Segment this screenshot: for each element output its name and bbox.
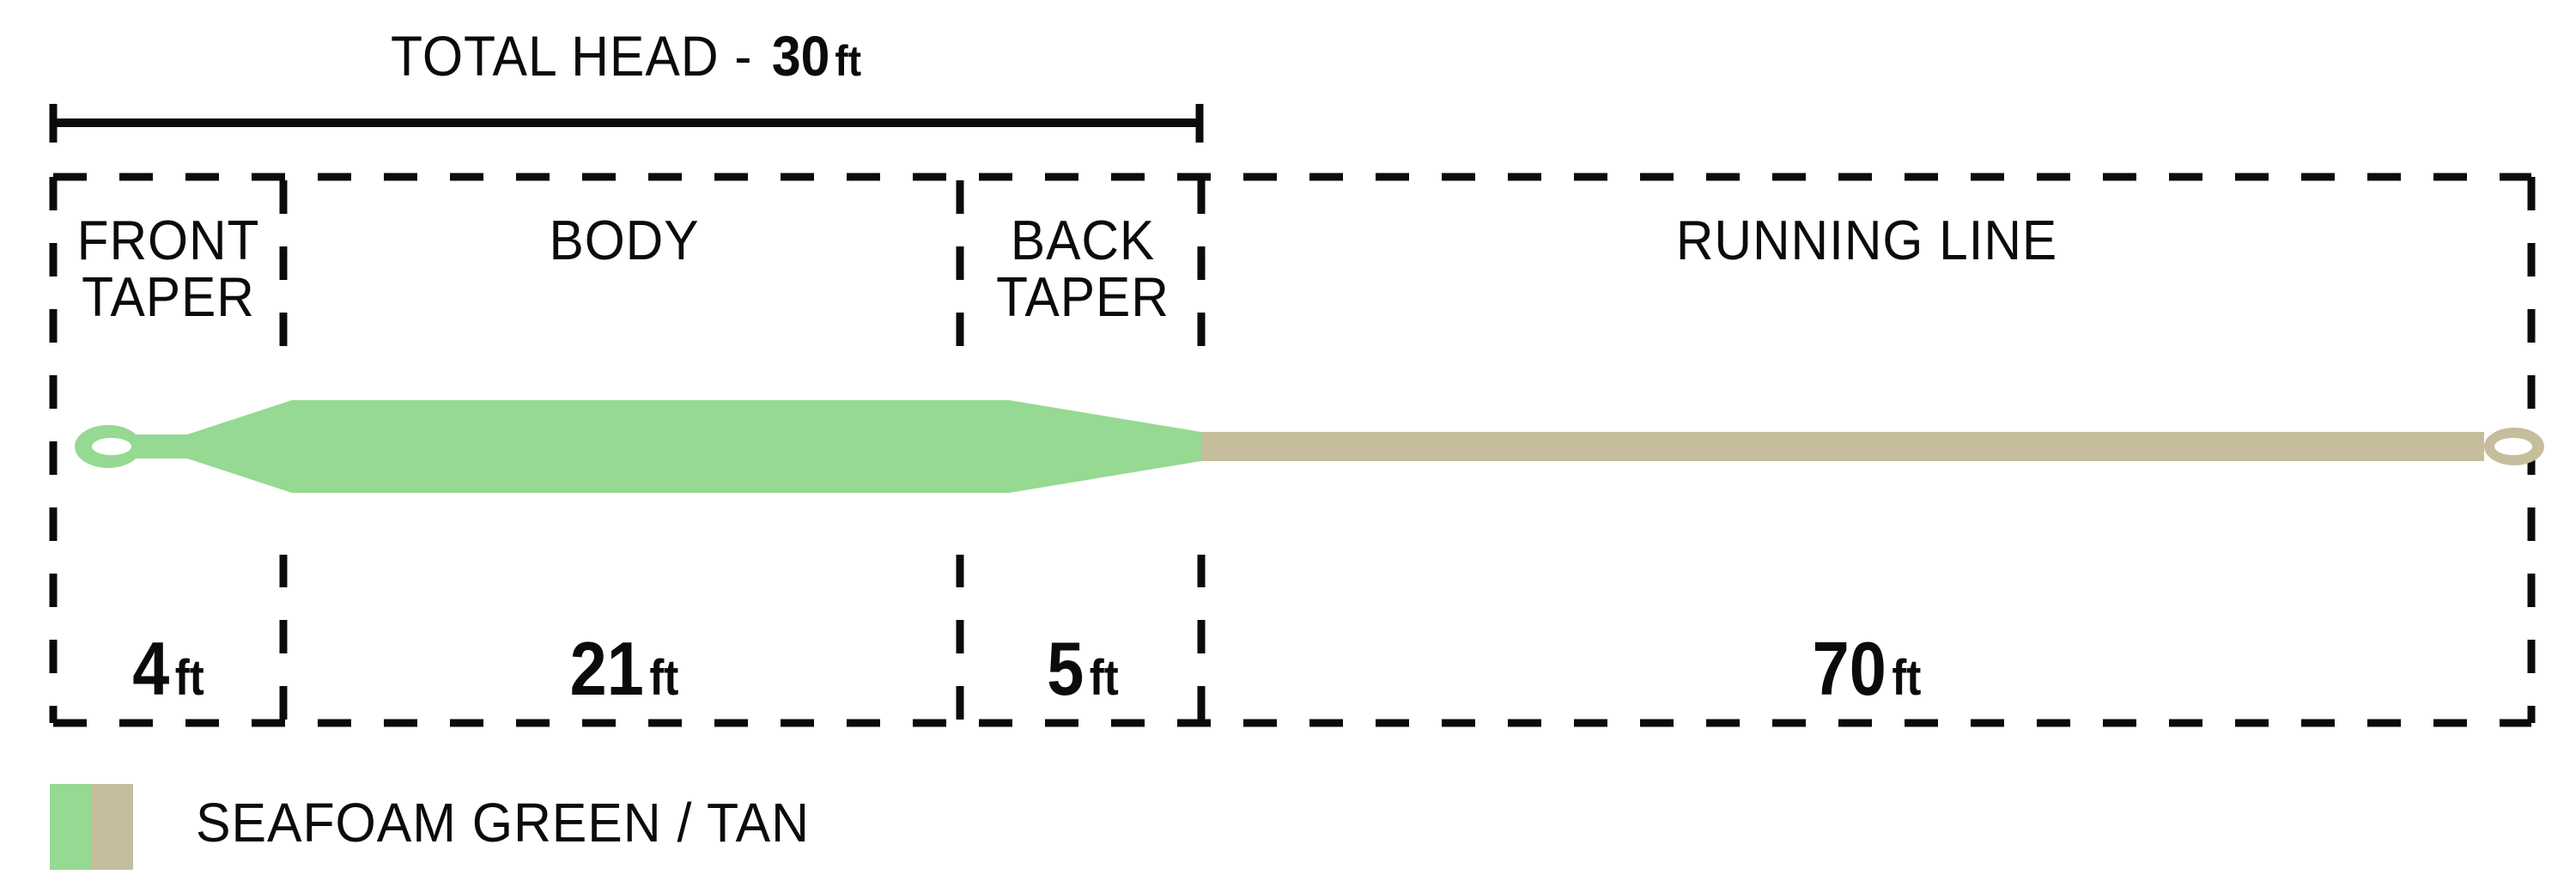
back-taper-label-line2: TAPER: [996, 266, 1170, 328]
back-loop-hole: [2494, 438, 2532, 455]
legend-swatch-green: [50, 784, 91, 870]
legend-label: SEAFOAM GREEN / TAN: [196, 793, 810, 854]
running-line-length-unit: ft: [1892, 650, 1921, 706]
title-prefix: TOTAL HEAD -: [391, 26, 752, 88]
body-length: 21 ft: [570, 626, 679, 711]
running-line-shape: [1201, 432, 2484, 461]
fly-line-profile: [75, 400, 2544, 493]
front-taper-length: 4 ft: [132, 626, 204, 711]
front-taper-label-line1: FRONT: [77, 210, 260, 271]
legend-swatch-tan: [91, 784, 133, 870]
body-length-unit: ft: [649, 650, 678, 706]
title-value: 30: [772, 26, 830, 88]
front-taper-length-unit: ft: [175, 650, 204, 706]
total-head-title: TOTAL HEAD - 30 ft: [391, 26, 861, 88]
color-legend: SEAFOAM GREEN / TAN: [50, 784, 810, 870]
back-taper-label-line1: BACK: [1011, 210, 1155, 271]
svg-text:TOTAL HEAD - 30 ft: TOTAL HEAD - 30 ft: [391, 26, 861, 88]
running-line-label: RUNNING LINE: [1676, 210, 2057, 271]
back-taper-length-unit: ft: [1090, 650, 1119, 706]
back-taper-length-value: 5: [1047, 626, 1084, 711]
body-label: BODY: [550, 210, 700, 271]
head-profile-shape: [136, 400, 1201, 493]
back-taper-length: 5 ft: [1047, 626, 1119, 711]
running-line-length: 70 ft: [1813, 626, 1922, 711]
front-taper-length-value: 4: [132, 626, 169, 711]
section-measurements: 4 ft 21 ft 5 ft 70 ft: [132, 626, 1921, 711]
diagram-canvas: TOTAL HEAD - 30 ft FRONT TAPER BODY BACK…: [0, 0, 2576, 893]
running-line-length-value: 70: [1813, 626, 1886, 711]
front-loop-hole: [92, 438, 131, 455]
section-labels: FRONT TAPER BODY BACK TAPER RUNNING LINE: [77, 210, 2058, 328]
fly-line-taper-diagram: TOTAL HEAD - 30 ft FRONT TAPER BODY BACK…: [0, 0, 2576, 893]
back-taper-label: BACK TAPER: [996, 210, 1170, 328]
total-head-bracket: [53, 104, 1200, 143]
body-length-value: 21: [570, 626, 644, 711]
front-taper-label: FRONT TAPER: [77, 210, 260, 328]
front-taper-label-line2: TAPER: [82, 266, 255, 328]
title-unit: ft: [835, 38, 861, 85]
